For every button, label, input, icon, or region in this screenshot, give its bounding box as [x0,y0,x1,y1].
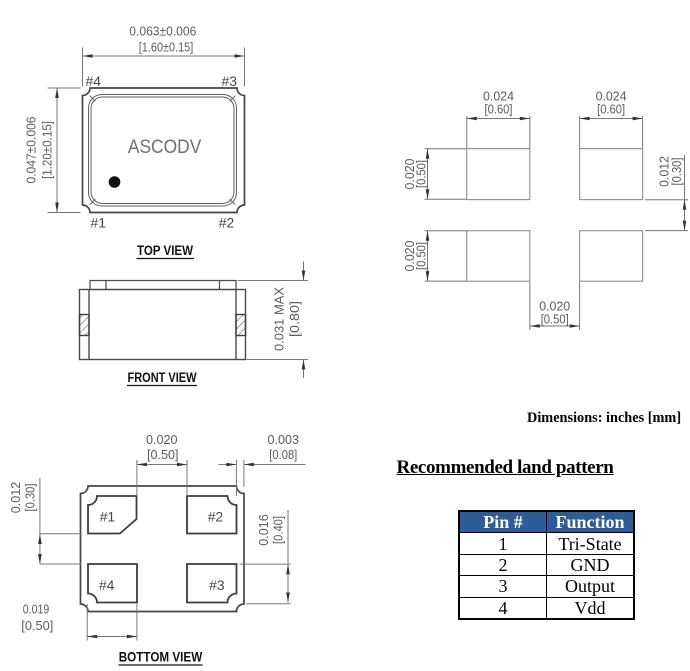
svg-text:BOTTOM VIEW: BOTTOM VIEW [119,650,203,665]
svg-text:0.047±0.006: 0.047±0.006 [24,117,39,184]
svg-text:ASCODV: ASCODV [128,137,202,158]
svg-text:0.019: 0.019 [23,602,50,617]
svg-text:#3: #3 [209,577,225,593]
svg-text:#1: #1 [100,509,116,525]
svg-text:0.031 MAX: 0.031 MAX [271,287,286,351]
svg-text:[0.50]: [0.50] [413,242,428,270]
svg-text:[0.50]: [0.50] [147,447,179,462]
svg-text:#3: #3 [222,73,238,89]
svg-text:#2: #2 [219,215,235,231]
svg-text:0.063±0.006: 0.063±0.006 [129,24,196,39]
svg-text:#1: #1 [91,215,107,231]
svg-text:[1.20±0.15]: [1.20±0.15] [40,121,55,179]
svg-text:[0.08]: [0.08] [269,447,297,462]
svg-text:TOP VIEW: TOP VIEW [137,243,193,258]
svg-text:FRONT VIEW: FRONT VIEW [128,370,197,385]
svg-text:[0.30]: [0.30] [669,158,684,186]
svg-text:[0.50]: [0.50] [413,160,428,188]
svg-text:[0.30]: [0.30] [22,484,37,512]
svg-text:#4: #4 [99,577,115,593]
svg-text:[0.60]: [0.60] [597,102,625,117]
svg-text:[0.80]: [0.80] [287,301,302,337]
svg-text:0.016: 0.016 [256,514,271,546]
svg-text:[0.60]: [0.60] [485,102,513,117]
svg-text:0.003: 0.003 [268,432,300,447]
svg-text:[1.60±0.15]: [1.60±0.15] [139,40,194,55]
svg-text:[0.40]: [0.40] [271,516,286,544]
svg-text:#2: #2 [208,509,224,525]
svg-text:#4: #4 [86,73,102,89]
svg-text:0.012: 0.012 [8,482,23,514]
svg-text:[0.50]: [0.50] [21,618,53,633]
svg-text:[0.50]: [0.50] [541,312,569,327]
svg-text:0.020: 0.020 [146,432,178,447]
